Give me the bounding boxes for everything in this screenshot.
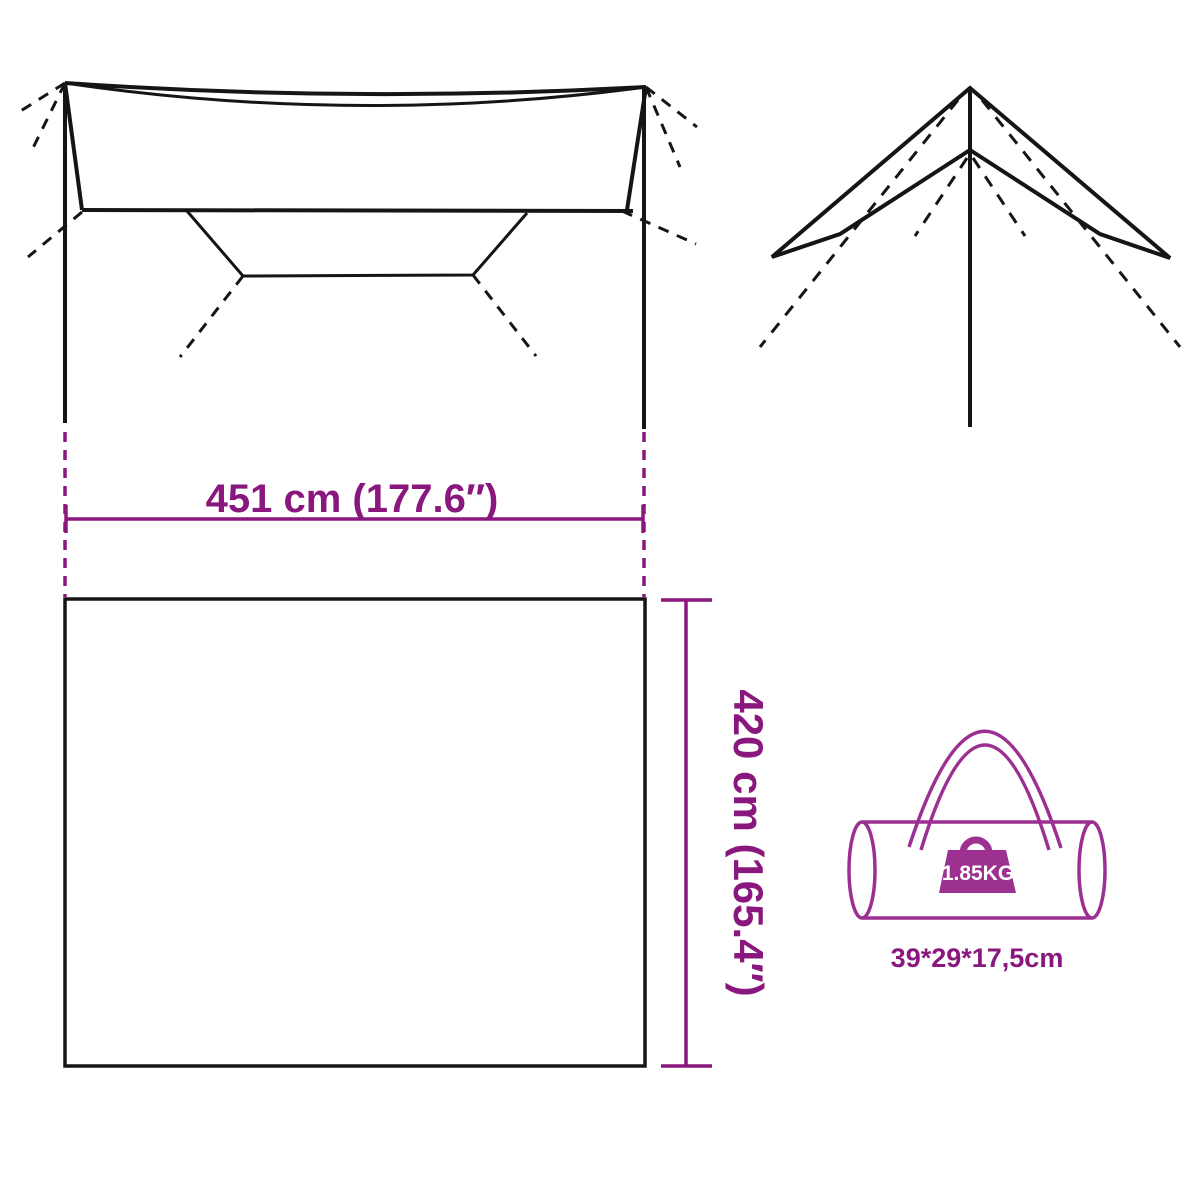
bag-handle-inner (921, 745, 1049, 850)
guy-line-bottom-right-corner (622, 211, 696, 244)
guy-line-top-left-a (19, 83, 65, 112)
product-dimension-sheet: 451 cm (177.6″) 420 cm (165.4″) 1.85KG 3… (0, 0, 1200, 1200)
bag-end-right (1079, 822, 1105, 918)
tarp-ridge-upper-edge (65, 83, 646, 94)
weight-icon: 1.85KG (939, 840, 1016, 893)
guy-line-inner-right (473, 275, 536, 356)
bag-size-label: 39*29*17,5cm (891, 943, 1064, 973)
tarp-left-edge (65, 83, 82, 210)
tarp-bottom-hem (82, 210, 633, 211)
carry-bag-icon: 1.85KG 39*29*17,5cm (849, 731, 1105, 973)
guy-line-top-left-b (33, 83, 65, 148)
guy-line-bottom-left-corner (28, 212, 82, 257)
width-dimension-label: 451 cm (177.6″) (206, 477, 499, 521)
height-dimension: 420 cm (165.4″) (661, 600, 772, 1066)
guy-line-long-left (760, 100, 958, 347)
height-dimension-label: 420 cm (165.4″) (725, 689, 772, 996)
tarp-footprint-rect (65, 599, 645, 1066)
guy-line-long-right (982, 100, 1180, 347)
guy-line-inner-left (180, 276, 243, 357)
weight-label: 1.85KG (942, 862, 1014, 885)
tarp-pitched-view-diagram (760, 88, 1180, 427)
width-dimension: 451 cm (177.6″) (65, 432, 644, 597)
tarp-top-view-diagram (19, 83, 697, 429)
bag-end-left (849, 822, 875, 918)
dimension-diagram-svg: 451 cm (177.6″) 420 cm (165.4″) 1.85KG 3… (0, 0, 1200, 1200)
bag-handle-outer (909, 731, 1061, 848)
tarp-inner-panel-fold (187, 211, 527, 276)
